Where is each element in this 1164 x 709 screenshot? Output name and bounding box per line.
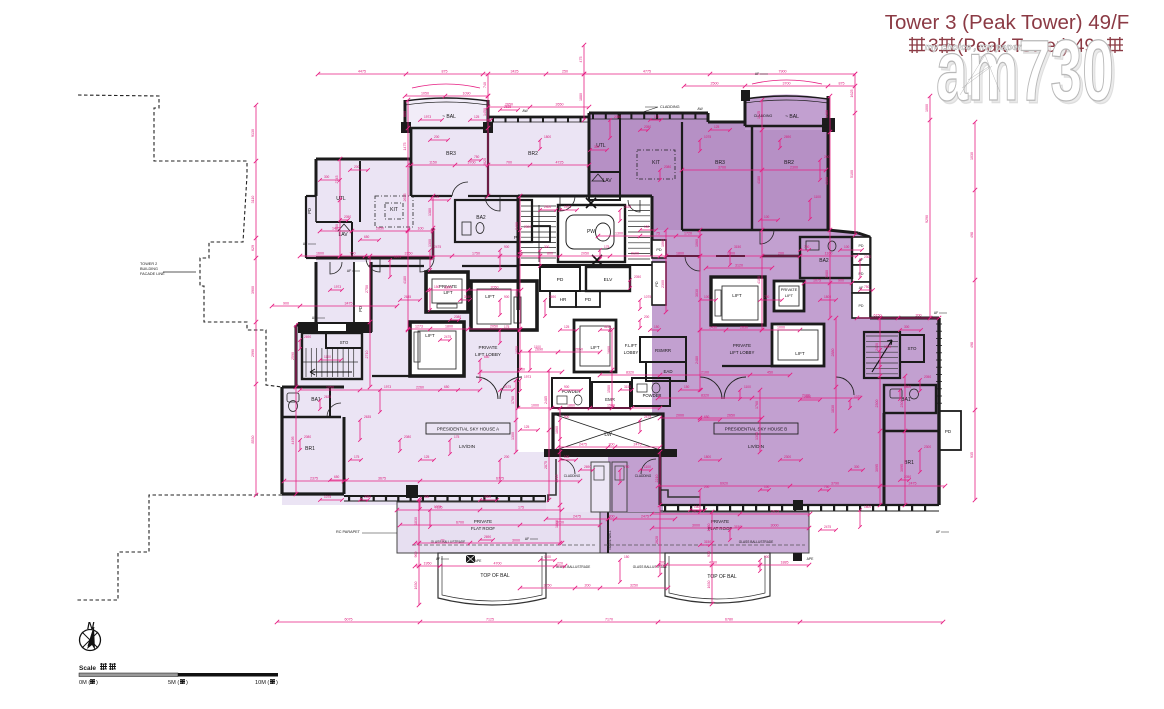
svg-text:1880: 1880 — [579, 93, 583, 101]
svg-text:750: 750 — [864, 285, 870, 289]
svg-text:APE: APE — [807, 557, 815, 561]
svg-text:1973: 1973 — [384, 385, 391, 389]
svg-text:2210: 2210 — [555, 475, 559, 483]
svg-text:KIT: KIT — [390, 207, 398, 213]
svg-text:3250: 3250 — [544, 583, 552, 587]
svg-text:3675: 3675 — [378, 476, 386, 480]
svg-text:1630: 1630 — [707, 581, 711, 589]
svg-text:1760: 1760 — [755, 401, 759, 409]
svg-text:LIFT: LIFT — [785, 293, 794, 298]
svg-text:2635: 2635 — [364, 415, 371, 419]
svg-text:1750: 1750 — [472, 251, 480, 255]
svg-text:3425: 3425 — [511, 69, 519, 73]
svg-text:175: 175 — [518, 505, 524, 509]
svg-text:200: 200 — [609, 442, 615, 446]
svg-text:1450: 1450 — [483, 108, 487, 116]
svg-text:750: 750 — [474, 155, 480, 159]
svg-text:1860: 1860 — [567, 403, 575, 407]
svg-text:1480: 1480 — [825, 110, 829, 118]
svg-text:75: 75 — [656, 231, 660, 235]
svg-text:7170: 7170 — [605, 617, 613, 621]
svg-text:GLASS BALLUSTRADE: GLASS BALLUSTRADE — [633, 565, 668, 569]
svg-text:1450: 1450 — [709, 325, 717, 329]
svg-text:1075: 1075 — [854, 395, 861, 399]
svg-text:2300: 2300 — [484, 495, 491, 499]
svg-text:2080: 2080 — [664, 165, 671, 169]
svg-text:7125: 7125 — [486, 617, 494, 621]
svg-text:1273: 1273 — [415, 324, 423, 328]
svg-text:2050: 2050 — [581, 251, 589, 255]
svg-text:650: 650 — [364, 235, 370, 239]
svg-text:~ BAL: ~ BAL — [785, 114, 799, 120]
svg-text:2050: 2050 — [634, 275, 641, 279]
svg-text:2745: 2745 — [335, 176, 339, 184]
svg-text:200: 200 — [609, 514, 615, 518]
svg-text:2590: 2590 — [291, 352, 295, 360]
svg-text:TOP OF BAL: TOP OF BAL — [480, 573, 509, 579]
svg-text:1100: 1100 — [744, 385, 751, 389]
svg-text:2300: 2300 — [727, 251, 735, 255]
svg-text:2080: 2080 — [404, 435, 411, 439]
svg-text:BR1: BR1 — [904, 460, 914, 466]
svg-text:1973: 1973 — [334, 285, 341, 289]
svg-text:1075: 1075 — [644, 295, 651, 299]
svg-text:2650: 2650 — [740, 325, 748, 329]
svg-text:1030: 1030 — [970, 152, 974, 160]
svg-text:PD: PD — [557, 277, 564, 283]
svg-text:1830: 1830 — [831, 405, 835, 413]
svg-text:1000: 1000 — [777, 325, 785, 329]
svg-text:3000: 3000 — [512, 538, 520, 542]
svg-text:200: 200 — [778, 251, 784, 255]
svg-text:750: 750 — [804, 245, 810, 249]
svg-text:175: 175 — [354, 455, 360, 459]
svg-text:1973: 1973 — [564, 205, 571, 209]
svg-text:1973: 1973 — [524, 375, 531, 379]
svg-text:TOWER 2: TOWER 2 — [140, 262, 157, 266]
svg-text:1100: 1100 — [644, 465, 651, 469]
svg-text:PD: PD — [945, 429, 952, 434]
svg-text:BR2: BR2 — [528, 151, 538, 157]
svg-text:2050: 2050 — [344, 215, 351, 219]
svg-text:650: 650 — [334, 475, 340, 479]
svg-text:2990: 2990 — [251, 349, 255, 357]
svg-text:700: 700 — [506, 160, 512, 164]
svg-text:200: 200 — [916, 313, 922, 317]
svg-text:1500: 1500 — [607, 403, 615, 407]
svg-text:100: 100 — [434, 195, 440, 199]
svg-text:PD: PD — [358, 306, 363, 312]
svg-text:1800: 1800 — [676, 251, 684, 255]
svg-text:3000: 3000 — [692, 523, 700, 527]
svg-text:PD: PD — [859, 304, 864, 308]
svg-text:2260: 2260 — [416, 385, 424, 389]
svg-text:3095: 3095 — [875, 464, 879, 472]
svg-text:900: 900 — [564, 385, 570, 389]
svg-text:3110: 3110 — [251, 196, 255, 204]
svg-text:AF: AF — [755, 72, 759, 76]
svg-text:300: 300 — [594, 145, 600, 149]
svg-text:2650: 2650 — [575, 347, 583, 351]
svg-text:HR: HR — [560, 297, 567, 302]
svg-text:2050: 2050 — [490, 324, 498, 328]
svg-text:1973: 1973 — [424, 115, 431, 119]
svg-text:2635: 2635 — [403, 194, 407, 202]
svg-text:FACADE LINE: FACADE LINE — [140, 272, 165, 276]
svg-text:3150: 3150 — [704, 540, 711, 544]
svg-text:750: 750 — [624, 465, 630, 469]
svg-text:3150: 3150 — [734, 245, 741, 249]
svg-text:1100: 1100 — [534, 345, 541, 349]
svg-text:1075: 1075 — [813, 278, 821, 282]
svg-text:1060: 1060 — [661, 239, 665, 247]
svg-text:3790: 3790 — [831, 481, 839, 485]
svg-text:1830: 1830 — [414, 517, 418, 525]
svg-text:100: 100 — [704, 295, 710, 299]
svg-text:FENCE WALL: FENCE WALL — [608, 530, 612, 549]
svg-text:5M (: 5M ( — [168, 680, 179, 686]
svg-text:LIV/DIN: LIV/DIN — [748, 444, 764, 449]
svg-text:875: 875 — [442, 69, 448, 73]
svg-text:875: 875 — [839, 81, 845, 85]
svg-text:4180: 4180 — [757, 276, 761, 284]
svg-text:2875: 2875 — [544, 461, 548, 469]
svg-text:2635: 2635 — [404, 295, 411, 299]
svg-text:2475: 2475 — [579, 442, 587, 446]
svg-text:PRIVATE: PRIVATE — [781, 287, 798, 292]
svg-text:200: 200 — [644, 315, 650, 319]
svg-text:4180: 4180 — [757, 176, 761, 184]
svg-text:7900: 7900 — [779, 69, 787, 73]
svg-text:8320: 8320 — [626, 370, 634, 374]
svg-text:3475: 3475 — [345, 301, 353, 305]
svg-text:1100: 1100 — [825, 251, 833, 255]
svg-text:1900: 1900 — [335, 224, 339, 232]
svg-text:AF: AF — [934, 311, 938, 315]
svg-text:960: 960 — [414, 552, 418, 558]
svg-text:200: 200 — [704, 485, 710, 489]
svg-text:150: 150 — [644, 225, 650, 229]
svg-text:100: 100 — [764, 485, 770, 489]
svg-text:3700: 3700 — [783, 81, 791, 85]
svg-text:1100: 1100 — [814, 195, 821, 199]
svg-text:2050: 2050 — [491, 285, 499, 289]
svg-text:125: 125 — [524, 425, 530, 429]
svg-text:2475: 2475 — [644, 415, 651, 419]
svg-text:9130: 9130 — [251, 129, 255, 137]
svg-text:1050: 1050 — [421, 91, 429, 95]
svg-text:CLADDING: CLADDING — [635, 474, 652, 478]
svg-text:2300: 2300 — [924, 445, 931, 449]
svg-text:1100: 1100 — [544, 555, 551, 559]
svg-text:3150: 3150 — [624, 385, 631, 389]
svg-text:2300: 2300 — [544, 205, 551, 209]
svg-text:1280: 1280 — [707, 524, 711, 532]
svg-text:9290: 9290 — [925, 215, 929, 223]
svg-text:2300: 2300 — [524, 225, 531, 229]
svg-text:RC PARAPET: RC PARAPET — [336, 530, 361, 534]
svg-text:AF: AF — [303, 242, 307, 246]
svg-text:100: 100 — [418, 226, 424, 230]
svg-text:EAD: EAD — [663, 369, 672, 374]
svg-text:3250: 3250 — [630, 583, 638, 587]
svg-text:): ) — [276, 680, 278, 686]
svg-text:3900: 3900 — [251, 286, 255, 294]
svg-text:1475: 1475 — [403, 143, 407, 151]
svg-text:0M (: 0M ( — [79, 680, 90, 686]
svg-text:900: 900 — [283, 301, 289, 305]
svg-text:475: 475 — [579, 57, 583, 63]
svg-text:1800: 1800 — [864, 505, 871, 509]
svg-text:2690: 2690 — [584, 465, 591, 469]
svg-text:2750: 2750 — [365, 285, 369, 293]
svg-text:4495: 4495 — [291, 437, 295, 445]
svg-text:LIFT: LIFT — [795, 351, 805, 356]
svg-text:FLAT ROOF: FLAT ROOF — [708, 526, 733, 531]
svg-text:125: 125 — [424, 455, 430, 459]
svg-text:4180: 4180 — [403, 276, 407, 284]
svg-text:1075: 1075 — [434, 505, 441, 509]
svg-text:1885: 1885 — [781, 560, 789, 564]
svg-text:200: 200 — [585, 583, 591, 587]
svg-text:2475: 2475 — [909, 481, 917, 485]
svg-text:AF: AF — [525, 537, 529, 541]
svg-text:175: 175 — [504, 325, 510, 329]
svg-text:900: 900 — [504, 295, 510, 299]
svg-text:5100: 5100 — [850, 170, 854, 178]
svg-text:750: 750 — [764, 295, 770, 299]
svg-text:150: 150 — [684, 385, 690, 389]
svg-text:2690: 2690 — [304, 335, 311, 339]
svg-text:2475: 2475 — [504, 385, 511, 389]
svg-text:PD: PD — [655, 281, 659, 287]
svg-text:ELV: ELV — [604, 277, 614, 283]
svg-text:300: 300 — [544, 245, 550, 249]
svg-text:2475: 2475 — [824, 525, 831, 529]
svg-text:~ BAL: ~ BAL — [442, 114, 456, 120]
svg-text:Scale: Scale — [79, 665, 96, 672]
svg-text:6920: 6920 — [720, 481, 728, 485]
svg-text:200: 200 — [434, 135, 440, 139]
svg-text:2375: 2375 — [310, 476, 318, 480]
svg-text:F.LIFT: F.LIFT — [625, 343, 638, 348]
svg-text:1760: 1760 — [511, 396, 515, 404]
svg-text:AF: AF — [347, 269, 351, 273]
svg-text:3150: 3150 — [734, 525, 741, 529]
svg-text:900: 900 — [838, 278, 844, 282]
svg-text:2475: 2475 — [771, 509, 779, 513]
svg-text:1800: 1800 — [824, 295, 831, 299]
svg-text:20: 20 — [441, 538, 445, 542]
svg-text:STO: STO — [340, 340, 349, 345]
svg-text:1800: 1800 — [544, 135, 551, 139]
svg-text:200: 200 — [354, 165, 360, 169]
svg-text:1600: 1600 — [316, 251, 324, 255]
svg-text:2635: 2635 — [324, 395, 331, 399]
svg-text:3120: 3120 — [735, 263, 743, 267]
svg-text:2475: 2475 — [573, 514, 581, 518]
svg-text:PRESIDENTIAL SKY HOUSE B: PRESIDENTIAL SKY HOUSE B — [725, 427, 788, 432]
svg-text:2880: 2880 — [831, 349, 835, 357]
svg-text:2050: 2050 — [644, 125, 651, 129]
svg-text:BR3: BR3 — [446, 151, 456, 157]
svg-text:1380: 1380 — [428, 208, 432, 216]
svg-text:3680: 3680 — [825, 270, 829, 278]
svg-text:200: 200 — [824, 155, 830, 159]
svg-text:my choice , my paper: my choice , my paper — [925, 42, 1023, 53]
svg-text:2000: 2000 — [676, 413, 684, 417]
svg-text:2635: 2635 — [504, 105, 511, 109]
svg-text:FLAT ROOF: FLAT ROOF — [471, 526, 496, 531]
svg-text:PRESIDENTIAL SKY HOUSE A: PRESIDENTIAL SKY HOUSE A — [437, 427, 499, 432]
svg-text:2420: 2420 — [875, 343, 879, 351]
svg-text:2690: 2690 — [484, 535, 491, 539]
svg-text:2300: 2300 — [875, 400, 879, 408]
svg-text:6075: 6075 — [345, 617, 353, 621]
svg-text:3030: 3030 — [695, 289, 699, 297]
svg-text:1800: 1800 — [884, 345, 891, 349]
svg-text:650: 650 — [484, 355, 490, 359]
svg-text:PD: PD — [859, 272, 864, 276]
svg-text:3150: 3150 — [464, 295, 471, 299]
svg-text:930: 930 — [707, 551, 711, 557]
svg-text:3150: 3150 — [604, 325, 611, 329]
svg-text:1100: 1100 — [324, 355, 331, 359]
svg-text:1075: 1075 — [394, 255, 401, 259]
svg-text:1650: 1650 — [515, 346, 519, 354]
svg-text:1000: 1000 — [531, 403, 539, 407]
svg-text:175: 175 — [454, 435, 460, 439]
svg-text:EMR: EMR — [605, 397, 615, 402]
svg-text:2050: 2050 — [924, 375, 931, 379]
svg-text:2650: 2650 — [727, 413, 735, 417]
svg-text:8320: 8320 — [701, 393, 709, 397]
svg-text:498: 498 — [970, 342, 974, 348]
svg-text:2485: 2485 — [544, 396, 548, 404]
svg-text:4700: 4700 — [494, 561, 502, 565]
svg-text:4725: 4725 — [556, 160, 564, 164]
svg-text:250: 250 — [562, 69, 568, 73]
svg-text:600: 600 — [547, 251, 553, 255]
svg-text:125: 125 — [564, 325, 570, 329]
svg-text:4100: 4100 — [825, 177, 829, 185]
svg-text:3000: 3000 — [771, 523, 779, 527]
svg-text:PD: PD — [859, 244, 864, 248]
svg-text:1000: 1000 — [925, 104, 929, 112]
svg-text:2635: 2635 — [624, 205, 631, 209]
svg-text:629: 629 — [251, 245, 255, 251]
svg-text:CLADDING: CLADDING — [564, 474, 581, 478]
svg-text:1300: 1300 — [428, 239, 432, 247]
svg-text:750: 750 — [824, 485, 830, 489]
svg-text:2080: 2080 — [614, 115, 621, 119]
svg-text:3095: 3095 — [900, 464, 904, 472]
svg-text:): ) — [186, 680, 188, 686]
svg-text:AF: AF — [936, 530, 940, 534]
svg-text:2625: 2625 — [483, 158, 487, 166]
svg-text:100: 100 — [844, 245, 850, 249]
svg-text:125: 125 — [714, 125, 720, 129]
svg-text:BR1: BR1 — [305, 446, 315, 452]
svg-text:1050: 1050 — [326, 385, 334, 389]
svg-text:175: 175 — [654, 115, 660, 119]
svg-text:LIFT: LIFT — [485, 294, 495, 299]
svg-text:900: 900 — [564, 415, 570, 419]
svg-text:BA2: BA2 — [476, 215, 486, 221]
svg-text:8530: 8530 — [251, 436, 255, 444]
svg-text:CLADDING: CLADDING — [660, 105, 680, 109]
svg-text:450: 450 — [767, 370, 773, 374]
svg-text:LIFT: LIFT — [590, 345, 599, 350]
svg-text:2300: 2300 — [864, 255, 871, 259]
svg-text:125: 125 — [474, 115, 480, 119]
svg-text:750: 750 — [350, 251, 356, 255]
svg-text:2650: 2650 — [556, 102, 564, 106]
svg-text:AF: AF — [436, 557, 440, 561]
svg-text:APE: APE — [475, 559, 483, 563]
svg-text:): ) — [96, 680, 98, 686]
svg-text:LIFT: LIFT — [732, 293, 742, 298]
svg-text:300: 300 — [424, 495, 430, 499]
svg-text:LW: LW — [604, 432, 611, 438]
svg-text:1225: 1225 — [757, 111, 761, 119]
svg-text:6700: 6700 — [456, 520, 464, 524]
svg-text:1660: 1660 — [607, 346, 611, 354]
svg-text:2620: 2620 — [655, 536, 659, 544]
svg-text:AW: AW — [522, 109, 528, 113]
svg-text:740: 740 — [483, 82, 487, 88]
svg-text:1150: 1150 — [429, 160, 437, 164]
svg-text:2475: 2475 — [634, 442, 642, 446]
svg-text:RSMRR: RSMRR — [655, 348, 671, 353]
svg-text:650: 650 — [704, 415, 710, 419]
svg-text:2710: 2710 — [365, 351, 369, 359]
svg-text:1800: 1800 — [704, 455, 711, 459]
svg-text:150: 150 — [624, 555, 630, 559]
svg-text:2480: 2480 — [695, 356, 699, 364]
svg-text:1720: 1720 — [684, 231, 692, 235]
svg-text:1300: 1300 — [511, 432, 515, 440]
svg-text:3150: 3150 — [405, 251, 413, 255]
svg-text:PW: PW — [587, 229, 595, 235]
svg-text:AF: AF — [312, 316, 316, 320]
svg-text:1300: 1300 — [615, 231, 623, 235]
svg-text:1075: 1075 — [704, 135, 711, 139]
svg-text:150: 150 — [434, 285, 440, 289]
svg-text:PD: PD — [656, 248, 662, 252]
svg-text:2300: 2300 — [661, 280, 665, 288]
svg-text:1075: 1075 — [324, 495, 331, 499]
svg-text:PRIVATE: PRIVATE — [733, 343, 751, 348]
svg-text:10M (: 10M ( — [255, 680, 269, 686]
svg-text:PRIVATE: PRIVATE — [474, 519, 492, 524]
svg-text:300: 300 — [854, 465, 860, 469]
svg-text:1580: 1580 — [607, 385, 611, 393]
svg-text:150: 150 — [654, 325, 660, 329]
svg-text:2300: 2300 — [900, 400, 904, 408]
svg-text:2300: 2300 — [790, 165, 798, 169]
svg-text:4475: 4475 — [358, 69, 366, 73]
svg-text:BA2: BA2 — [819, 258, 829, 264]
svg-text:300: 300 — [904, 325, 910, 329]
svg-text:3700: 3700 — [718, 165, 726, 169]
svg-text:2690: 2690 — [784, 135, 791, 139]
svg-text:LIFT: LIFT — [443, 290, 452, 295]
svg-text:KIT: KIT — [652, 160, 660, 166]
svg-text:4775: 4775 — [643, 69, 651, 73]
svg-text:LOBBY: LOBBY — [624, 350, 639, 355]
svg-text:6150: 6150 — [874, 313, 882, 317]
